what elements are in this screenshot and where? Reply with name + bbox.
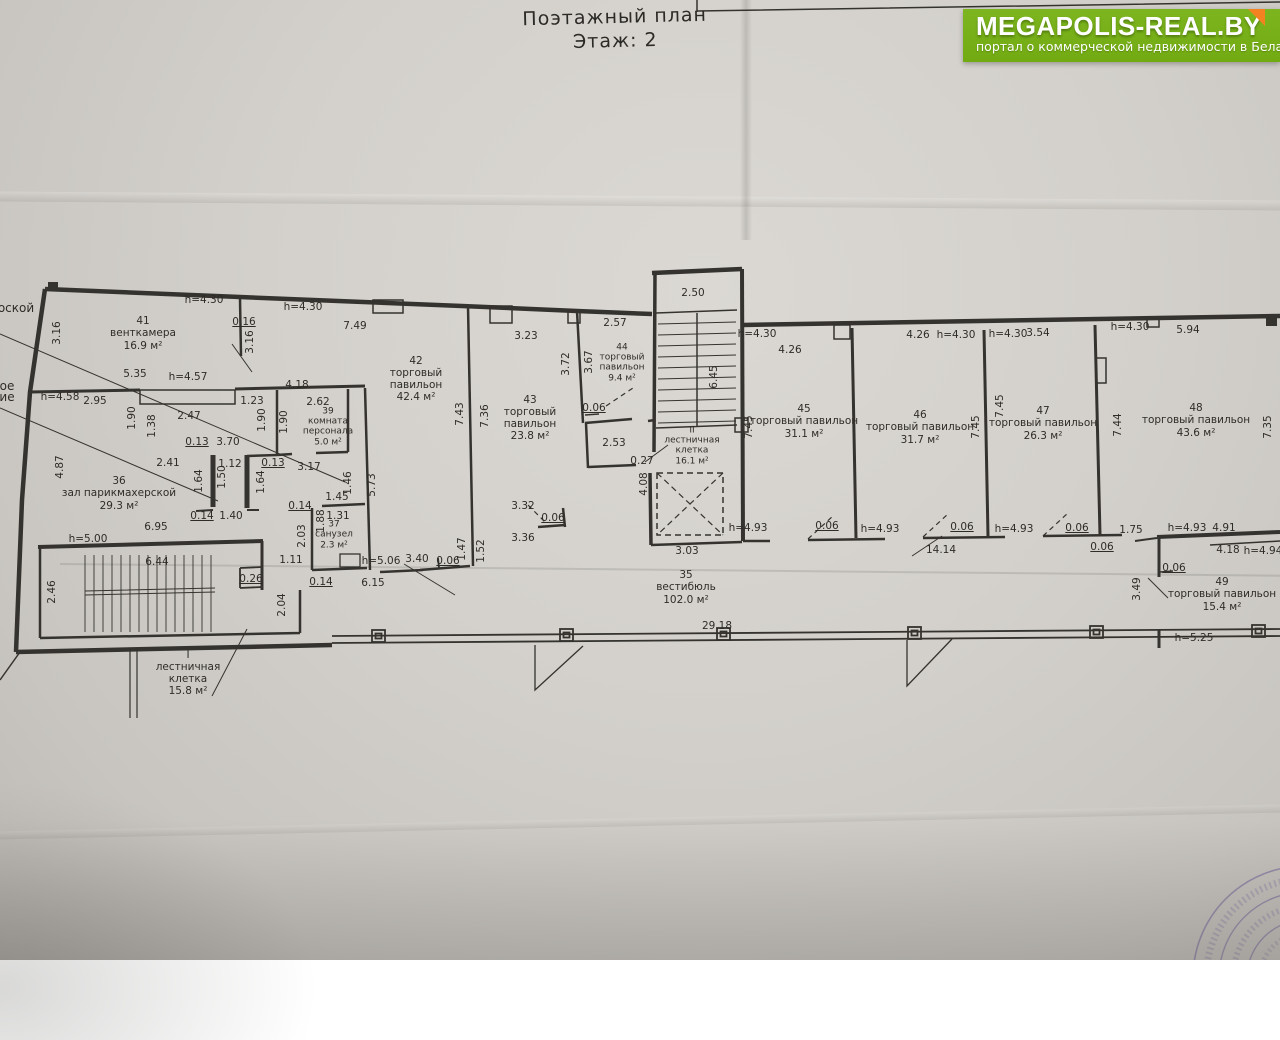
dimension-label: 7.36 xyxy=(479,404,491,427)
dimension-label: 0.26 xyxy=(239,573,262,585)
room-name: санузел xyxy=(299,531,369,541)
room-label-49: 49торговый павильон15.4 м² xyxy=(1137,577,1280,613)
cutoff-label: ие xyxy=(0,390,15,404)
dimension-label: 1.90 xyxy=(278,410,290,433)
room-number: 36 xyxy=(44,476,194,488)
dimension-label: 2.04 xyxy=(276,593,288,616)
room-area: 16.1 м² xyxy=(642,457,742,467)
dimension-label: 1.52 xyxy=(475,539,487,562)
dimension-label: 0.06 xyxy=(950,521,973,533)
room-area: 43.6 м² xyxy=(1111,427,1280,439)
dimension-label: 4.18 xyxy=(285,379,308,391)
dimension-label: 2.03 xyxy=(296,524,308,547)
dimension-label: 0.13 xyxy=(261,457,284,469)
dimension-label: 4.91 xyxy=(1212,522,1235,534)
dimension-label: h=4.93 xyxy=(861,523,900,535)
dimension-label: 4.26 xyxy=(906,329,929,341)
dimension-label: 0.06 xyxy=(541,512,564,524)
dimension-label: 1.75 xyxy=(1119,524,1142,536)
cutoff-label: оской xyxy=(0,301,34,315)
room-label-41: 41венткамера16.9 м² xyxy=(83,316,203,352)
dimension-label: 3.16 xyxy=(51,321,63,344)
dimension-label: 3.54 xyxy=(1026,327,1049,339)
dimension-label: 3.49 xyxy=(1131,577,1143,600)
dimension-label: 7.45 xyxy=(743,415,755,438)
dimension-label: h=4.30 xyxy=(284,301,323,313)
room-area: 15.4 м² xyxy=(1137,601,1280,613)
dimension-label: 3.16 xyxy=(244,330,256,353)
dimension-label: 1.64 xyxy=(193,469,205,492)
room-label-36: 36зал парикмахерской29.3 м² xyxy=(44,476,194,512)
dimension-label: 7.45 xyxy=(970,415,982,438)
room-label-43: 43торговый павильон23.8 м² xyxy=(485,395,575,443)
dimension-label: 2.50 xyxy=(681,287,704,299)
dimension-label: 0.06 xyxy=(582,402,605,414)
dimension-label: 0.06 xyxy=(1065,522,1088,534)
dimension-label: 7.43 xyxy=(454,402,466,425)
dimension-label: 0.06 xyxy=(1162,562,1185,574)
dimension-label: 2.47 xyxy=(177,410,200,422)
room-number: 42 xyxy=(371,356,461,368)
dimension-label: 1.23 xyxy=(240,395,263,407)
dimension-label: 7.45 xyxy=(994,394,1006,417)
room-area: 9.4 м² xyxy=(587,374,657,384)
dimension-label: h=5.00 xyxy=(69,533,108,545)
room-label-42: 42торговый павильон42.4 м² xyxy=(371,356,461,404)
room-name: торговый павильон xyxy=(485,407,575,431)
dimension-label: 4.08 xyxy=(638,472,650,495)
dimension-label: 3.72 xyxy=(560,352,572,375)
dimension-label: 5.94 xyxy=(1176,324,1199,336)
dimension-label: 0.27 xyxy=(630,455,653,467)
dimension-label: h=4.93 xyxy=(1168,522,1207,534)
dimension-label: 4.18 xyxy=(1216,544,1239,556)
dimension-label: 7.44 xyxy=(1112,413,1124,436)
dimension-label: h=4.94 xyxy=(1244,545,1280,557)
room-number: 41 xyxy=(83,316,203,328)
dimension-label: 1.88 xyxy=(315,509,327,532)
dimension-label: 0.14 xyxy=(288,500,311,512)
dimension-label: 2.57 xyxy=(603,317,626,329)
dimension-label: 2.41 xyxy=(156,457,179,469)
dimension-label: 1.31 xyxy=(326,510,349,522)
dimension-label: h=4.30 xyxy=(937,329,976,341)
dimension-label: h=4.93 xyxy=(995,523,1034,535)
room-name: торговый павильон xyxy=(371,368,461,392)
room-name: лестничная клетка xyxy=(642,437,742,457)
room-name: торговый павильон xyxy=(1137,589,1280,601)
dimension-label: 5.35 xyxy=(123,368,146,380)
dimension-label: 0.14 xyxy=(309,576,332,588)
dimension-label: 2.46 xyxy=(46,580,58,603)
dimension-label: 3.70 xyxy=(216,436,239,448)
room-number: 43 xyxy=(485,395,575,407)
dimension-label: h=4.58 xyxy=(41,391,80,403)
dimension-label: 1.40 xyxy=(219,510,242,522)
room-name: лестничная клетка xyxy=(133,662,243,686)
dimension-label: 3.40 xyxy=(405,553,428,565)
room-label-I: Iлестничная клетка15.8 м² xyxy=(133,650,243,698)
dimension-label: 2.62 xyxy=(306,396,329,408)
dimension-label: 0.14 xyxy=(190,510,213,522)
room-name: торговый павильон xyxy=(587,354,657,374)
dimension-label: 6.95 xyxy=(144,521,167,533)
dimension-label: 4.87 xyxy=(54,455,66,478)
room-label-47: 47торговый павильон26.3 м² xyxy=(958,406,1128,442)
dimension-label: h=4.93 xyxy=(729,522,768,534)
room-area: 42.4 м² xyxy=(371,392,461,404)
dimension-label: h=5.06 xyxy=(362,555,401,567)
dimension-label: 0.13 xyxy=(185,436,208,448)
dimension-label: 0.06 xyxy=(815,520,838,532)
room-area: 23.8 м² xyxy=(485,431,575,443)
dimension-label: 7.49 xyxy=(343,320,366,332)
dimension-label: 5.73 xyxy=(366,473,378,496)
room-area: 2.3 м² xyxy=(299,541,369,551)
room-label-39: 39комната персонала5.0 м² xyxy=(283,408,373,449)
dimension-label: 6.44 xyxy=(145,556,168,568)
room-label-35: 35вестибюль102.0 м² xyxy=(631,570,741,606)
dimension-label: 6.45 xyxy=(708,365,720,388)
room-name: торговый павильон xyxy=(1111,415,1280,427)
room-label-II: IIлестничная клетка16.1 м² xyxy=(642,427,742,468)
dimension-label: 3.17 xyxy=(297,461,320,473)
room-area: 5.0 м² xyxy=(283,438,373,448)
room-name: зал парикмахерской xyxy=(44,488,194,500)
room-area: 29.3 м² xyxy=(44,500,194,512)
dimension-label: 3.23 xyxy=(514,330,537,342)
dimension-label: 1.11 xyxy=(279,554,302,566)
dimension-label: 7.35 xyxy=(1262,415,1274,438)
room-area: 15.8 м² xyxy=(133,686,243,698)
photo-shadow xyxy=(0,780,320,1040)
room-name: вестибюль xyxy=(631,582,741,594)
dimension-label: 3.03 xyxy=(675,545,698,557)
floorplan-photo: Поэтажный план Этаж: 2 MEGAPOLIS-REAL.BY… xyxy=(0,0,1280,960)
dimension-label: h=5.25 xyxy=(1175,632,1214,644)
dimension-label: 1.64 xyxy=(255,470,267,493)
dimension-label: 1.90 xyxy=(256,408,268,431)
dimension-label: 4.26 xyxy=(778,344,801,356)
dimension-label: 1.45 xyxy=(325,491,348,503)
dimension-label: 3.32 xyxy=(511,500,534,512)
room-number: I xyxy=(133,650,243,662)
dimension-label: 2.53 xyxy=(602,437,625,449)
room-name: торговый павильон xyxy=(958,418,1128,430)
room-area: 102.0 м² xyxy=(631,594,741,606)
room-area: 26.3 м² xyxy=(958,430,1128,442)
dimension-label: h=4.30 xyxy=(185,294,224,306)
dimension-label: 29.18 xyxy=(702,620,732,632)
dimension-label: 1.47 xyxy=(456,537,468,560)
room-label-44: 44торговый павильон9.4 м² xyxy=(587,344,657,385)
dimension-label: 2.95 xyxy=(83,395,106,407)
room-number: 49 xyxy=(1137,577,1280,589)
dimension-label: 1.38 xyxy=(146,414,158,437)
dimension-label: 1.90 xyxy=(126,406,138,429)
dimension-label: h=4.30 xyxy=(738,328,777,340)
room-number: 48 xyxy=(1111,403,1280,415)
dimension-label: h=4.57 xyxy=(169,371,208,383)
dimension-label: h=4.30 xyxy=(1111,321,1150,333)
dimension-label: 1.50 xyxy=(216,465,228,488)
dimension-label: 6.15 xyxy=(361,577,384,589)
dimension-label: 0.16 xyxy=(232,316,255,328)
room-label-48: 48торговый павильон43.6 м² xyxy=(1111,403,1280,439)
room-area: 16.9 м² xyxy=(83,340,203,352)
dimension-label: 14.14 xyxy=(926,544,956,556)
room-name: венткамера xyxy=(83,328,203,340)
dimension-label: 0.06 xyxy=(1090,541,1113,553)
room-number: 47 xyxy=(958,406,1128,418)
room-name: комната персонала xyxy=(283,418,373,438)
room-label-37: 37санузел2.3 м² xyxy=(299,521,369,552)
dimension-label: 3.36 xyxy=(511,532,534,544)
room-number: 35 xyxy=(631,570,741,582)
dimension-label: h=4.30 xyxy=(989,328,1028,340)
dimension-label: 3.67 xyxy=(583,350,595,373)
